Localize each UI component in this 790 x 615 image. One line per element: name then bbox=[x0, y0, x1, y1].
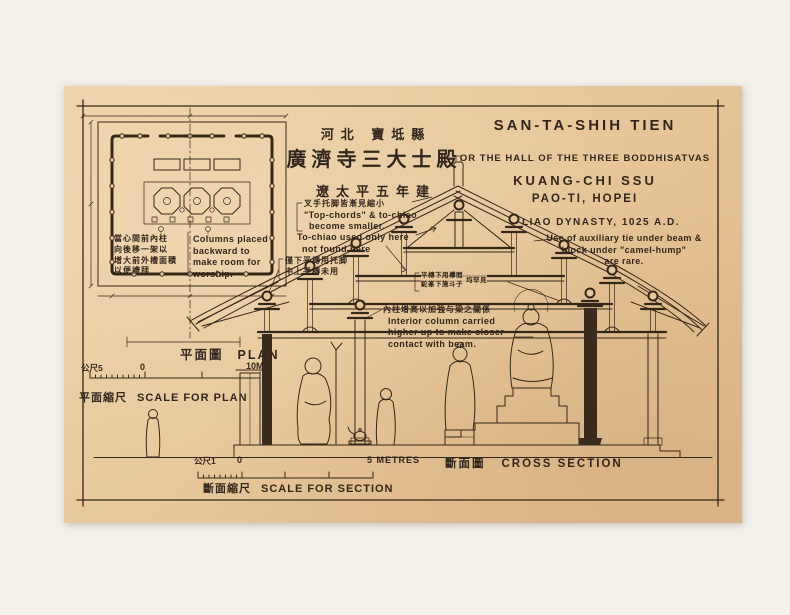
plan-note-en-3: make room for bbox=[193, 257, 268, 269]
plan-scale-max: 10M. bbox=[246, 361, 266, 371]
note-auxiliary-tie: Use of auxiliary tie under beam & block … bbox=[536, 233, 712, 268]
plan-scale-zero: 0 bbox=[140, 362, 145, 372]
note-interior-column: 內柱增高以加強与梁之關係 Interior column carried hig… bbox=[383, 305, 504, 351]
plan-scale-bar bbox=[90, 372, 260, 378]
front-wall-section bbox=[236, 370, 266, 445]
title-en-sub: OR THE HALL OF THE THREE BODDHISATVAS bbox=[455, 153, 715, 164]
note-tochiao-cn2: 中上平槫未用 bbox=[285, 267, 348, 278]
note-top-chords-cn: 叉手托脚皆漸見縮小 bbox=[304, 199, 417, 210]
plan-scale-metric-label: 公尺5 bbox=[81, 362, 103, 374]
kettle-on-stand bbox=[348, 427, 371, 444]
attendant-statue bbox=[376, 389, 395, 446]
note-panjian: 平槫下用襻間 駝峯下施斗子 均罕見 bbox=[421, 272, 487, 290]
note-interior-column-en3: contact with beam. bbox=[383, 339, 504, 351]
plan-note-en-1: Columns placed bbox=[193, 234, 268, 246]
note-interior-column-en1: Interior column carried bbox=[383, 316, 504, 328]
plan-label-cn: 平面圖 bbox=[180, 348, 224, 362]
plan-note-en-2: backward to bbox=[193, 246, 268, 258]
scale-figure bbox=[146, 410, 160, 458]
note-tochiao: To-chiao used only here not found here bbox=[297, 232, 409, 255]
title-en-dynasty: LIAO DYNASTY, 1025 A.D. bbox=[471, 217, 731, 228]
section-scale-caption-en: SCALE FOR SECTION bbox=[261, 483, 394, 495]
plan-note-cn-1: 當心間前內柱 bbox=[114, 234, 177, 245]
section-label-cn: 斷面圖 bbox=[445, 458, 486, 470]
note-interior-column-cn: 內柱增高以加強与梁之關係 bbox=[383, 305, 504, 316]
ground-and-floor bbox=[94, 423, 712, 458]
note-tochiao-en1: To-chiao used only here bbox=[297, 232, 409, 244]
standing-bodhisattva bbox=[445, 343, 475, 446]
note-top-chords-en1: "Top-chords" & to-chiao bbox=[304, 210, 417, 222]
note-top-chords: 叉手托脚皆漸見縮小 "Top-chords" & to-chiao become… bbox=[304, 199, 417, 233]
note-panjian-cn3: 均罕見 bbox=[466, 277, 487, 290]
note-tochiao-cn1: 僅下平槫用托脚 bbox=[285, 256, 348, 267]
title-en-place: PAO-TI, HOPEI bbox=[455, 193, 715, 205]
section-scale-caption: 斷面縮尺SCALE FOR SECTION bbox=[203, 480, 394, 496]
title-cn-region: 河北 寶坻縣 bbox=[296, 124, 456, 143]
title-cn-hall: 廣濟寺三大士殿 bbox=[274, 143, 474, 172]
note-panjian-cn1: 平槫下用襻間 bbox=[421, 272, 463, 281]
left-interior-column bbox=[355, 320, 365, 445]
right-eave-column bbox=[648, 334, 658, 445]
section-scale-metric-label: 公尺1 bbox=[194, 455, 216, 467]
plan-note-cn: 當心間前內柱 向後移一架以 增大前外槽面積 以便禮拜 bbox=[114, 234, 177, 277]
plan-note-cn-4: 以便禮拜 bbox=[114, 266, 177, 277]
plan-note-cn-3: 增大前外槽面積 bbox=[114, 256, 177, 267]
section-scale-bar bbox=[198, 472, 373, 478]
plan-note-en: Columns placed backward to make room for… bbox=[193, 234, 268, 281]
plan-note-en-4: worship. bbox=[193, 269, 268, 281]
note-panjian-cn2: 駝峯下施斗子 bbox=[421, 281, 463, 290]
note-auxiliary-tie-en2: block under "camel-hump" bbox=[536, 245, 712, 257]
plan-scale-caption-cn: 平面縮尺 bbox=[79, 392, 127, 404]
section-scale-max: 5 METRES bbox=[367, 455, 420, 465]
note-tochiao-en2: not found here bbox=[297, 244, 409, 256]
plan-label-en: PLAN bbox=[238, 348, 280, 362]
section-scale-caption-cn: 斷面縮尺 bbox=[203, 483, 251, 495]
note-interior-column-en2: higher up to make closer bbox=[383, 327, 504, 339]
note-tochiao-cn: 僅下平槫用托脚 中上平槫未用 bbox=[285, 256, 348, 278]
section-label-en: CROSS SECTION bbox=[502, 458, 623, 470]
note-auxiliary-tie-en1: Use of auxiliary tie under beam & bbox=[536, 233, 712, 245]
title-en-main: SAN-TA-SHIH TIEN bbox=[445, 117, 725, 134]
section-scale-zero: 0 bbox=[237, 455, 242, 465]
drawing-sheet: 河北 寶坻縣 廣濟寺三大士殿 遼太平五年建 SAN-TA-SHIH TIEN O… bbox=[64, 86, 742, 523]
plan-scale-caption: 平面縮尺SCALE FOR PLAN bbox=[79, 389, 248, 405]
plan-note-cn-2: 向後移一架以 bbox=[114, 245, 177, 256]
plan-scale-caption-en: SCALE FOR PLAN bbox=[137, 392, 248, 404]
screenshot-root: 河北 寶坻縣 廣濟寺三大士殿 遼太平五年建 SAN-TA-SHIH TIEN O… bbox=[0, 0, 790, 615]
section-label: 斷面圖CROSS SECTION bbox=[445, 455, 623, 471]
note-auxiliary-tie-en3: are rare. bbox=[536, 256, 712, 268]
interior-column-cut bbox=[584, 308, 597, 438]
guardian-statue bbox=[297, 342, 342, 444]
title-cn-dynasty: 遼太平五年建 bbox=[296, 181, 456, 200]
title-en-temple: KUANG-CHI SSU bbox=[455, 173, 715, 188]
plan-altar bbox=[144, 159, 250, 237]
